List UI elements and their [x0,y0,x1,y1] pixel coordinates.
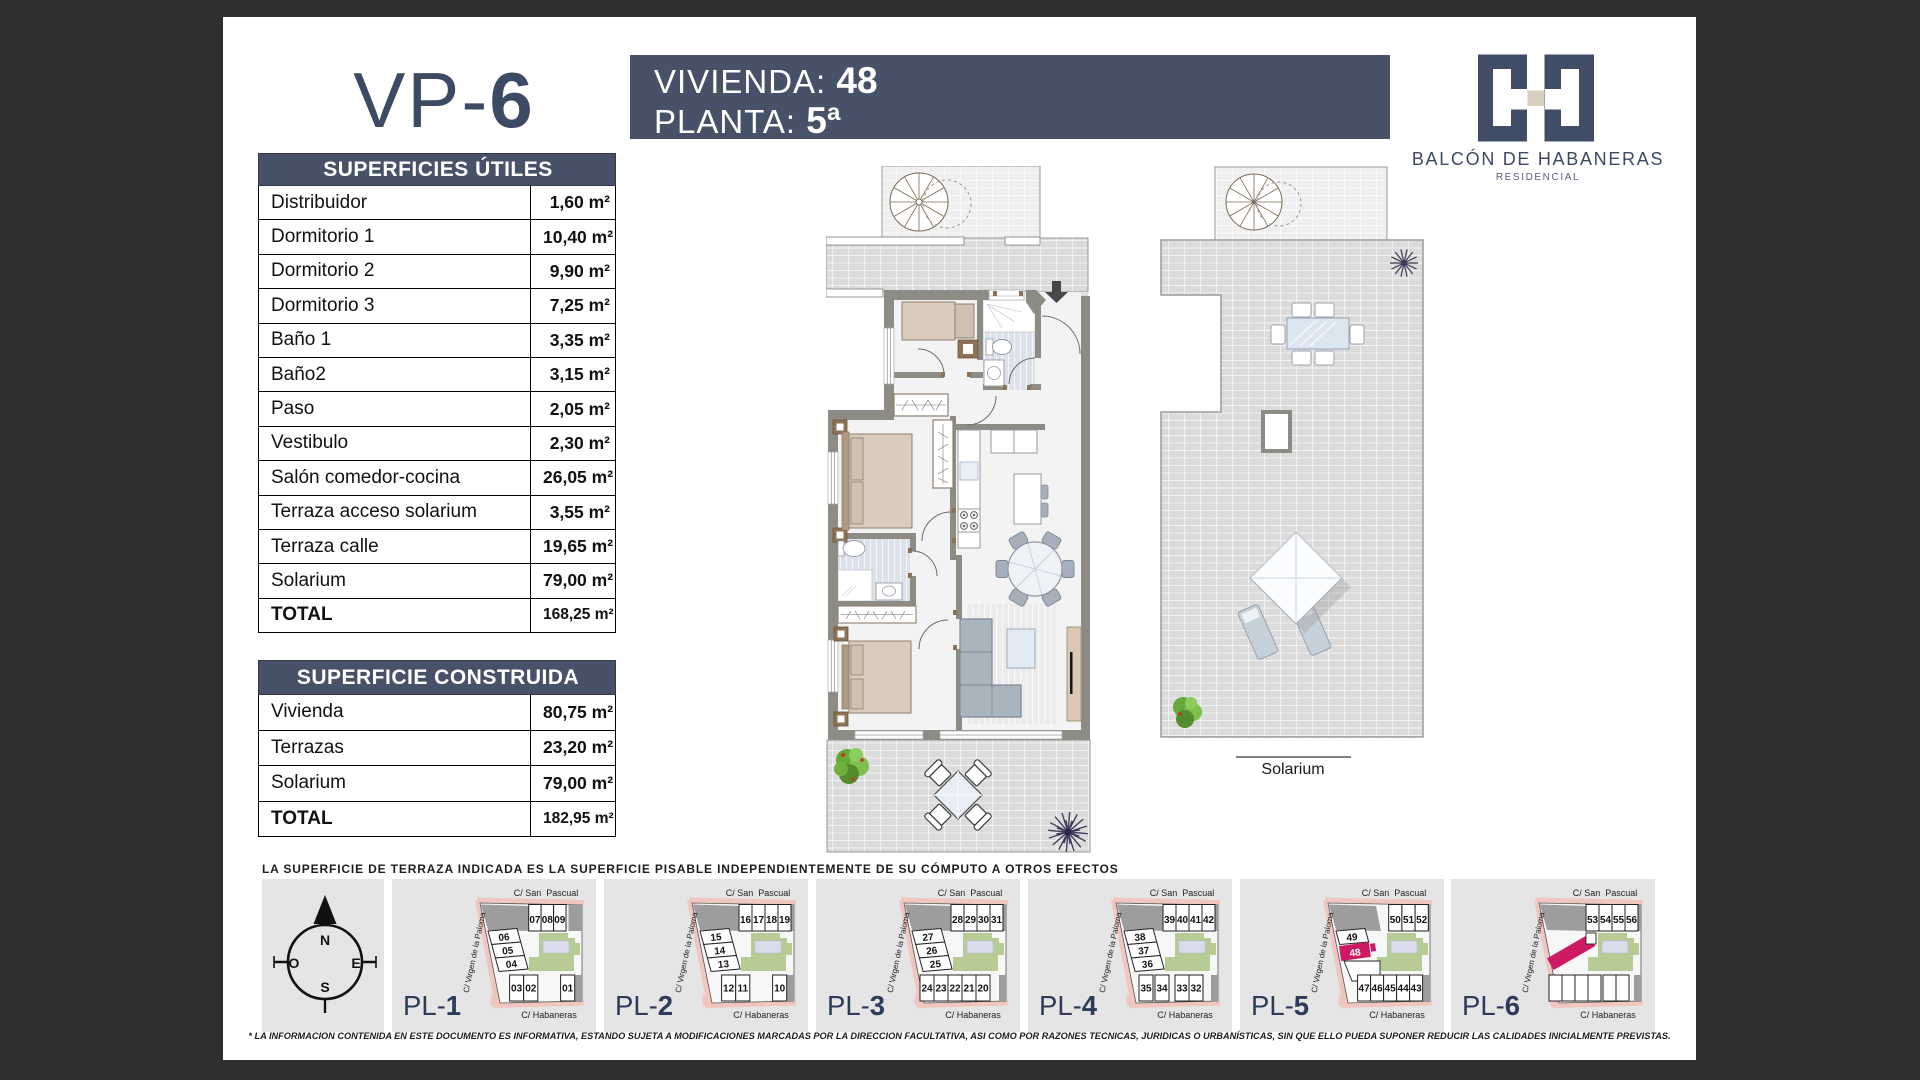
svg-text:C/ Virgen de la Paloma: C/ Virgen de la Paloma [1098,911,1124,994]
svg-text:35: 35 [1140,984,1152,995]
svg-text:27: 27 [922,932,934,944]
svg-text:11: 11 [738,984,749,995]
svg-text:07: 07 [529,915,541,926]
svg-text:53: 53 [1587,915,1599,926]
svg-text:PL-5: PL-5 [1251,990,1309,1021]
svg-text:21: 21 [963,984,975,995]
svg-text:32: 32 [1190,984,1202,995]
svg-text:51: 51 [1403,915,1415,926]
svg-text:O: O [289,955,300,971]
svg-text:E: E [351,955,360,971]
svg-text:C/ Habaneras: C/ Habaneras [1369,1010,1425,1020]
svg-text:08: 08 [542,915,554,926]
svg-text:49: 49 [1346,932,1358,944]
svg-text:01: 01 [562,984,574,995]
svg-text:33: 33 [1176,984,1188,995]
svg-text:05: 05 [502,945,514,957]
svg-text:54: 54 [1600,915,1612,926]
svg-text:44: 44 [1398,984,1410,995]
svg-text:38: 38 [1134,932,1146,944]
svg-text:20: 20 [977,984,989,995]
svg-text:Solarium: Solarium [1261,761,1324,778]
svg-text:C/ Habaneras: C/ Habaneras [1157,1010,1213,1020]
svg-text:36: 36 [1141,959,1153,971]
svg-text:PL-1: PL-1 [403,990,461,1021]
svg-text:02: 02 [525,984,537,995]
svg-text:30: 30 [978,915,990,926]
svg-text:55: 55 [1613,915,1625,926]
svg-text:BALCÓN DE HABANERAS: BALCÓN DE HABANERAS [1412,148,1664,169]
svg-text:40: 40 [1177,915,1189,926]
svg-text:18: 18 [766,915,778,926]
svg-text:03: 03 [511,984,523,995]
svg-text:15: 15 [710,932,722,944]
svg-text:22: 22 [949,984,961,995]
svg-text:29: 29 [965,915,977,926]
svg-text:37: 37 [1138,945,1150,957]
svg-text:52: 52 [1416,915,1428,926]
svg-text:13: 13 [717,959,729,971]
svg-text:28: 28 [952,915,964,926]
svg-text:C/ San Pascual: C/ San Pascual [1573,888,1638,898]
svg-text:PL-2: PL-2 [615,990,673,1021]
svg-text:S: S [320,979,329,995]
svg-text:39: 39 [1164,915,1176,926]
svg-text:46: 46 [1372,984,1384,995]
svg-text:23: 23 [935,984,947,995]
svg-text:RESIDENCIAL: RESIDENCIAL [1496,172,1580,183]
svg-text:C/ Habaneras: C/ Habaneras [1580,1010,1636,1020]
svg-text:34: 34 [1156,984,1168,995]
svg-text:26: 26 [926,945,938,957]
svg-text:C/ Virgen de la Paloma: C/ Virgen de la Paloma [886,911,912,994]
svg-text:56: 56 [1626,915,1638,926]
svg-text:24: 24 [921,984,933,995]
svg-text:12: 12 [723,984,735,995]
svg-text:17: 17 [753,915,765,926]
svg-text:43: 43 [1411,984,1423,995]
svg-text:04: 04 [505,959,517,971]
svg-text:C/ Virgen de la Paloma: C/ Virgen de la Paloma [462,911,488,994]
svg-text:C/ San Pascual: C/ San Pascual [726,888,791,898]
svg-text:45: 45 [1385,984,1397,995]
svg-text:PL-3: PL-3 [827,990,885,1021]
svg-text:48: 48 [1349,947,1362,960]
svg-text:10: 10 [774,984,786,995]
svg-text:PL-4: PL-4 [1039,990,1098,1021]
svg-text:50: 50 [1390,915,1402,926]
svg-text:C/ Habaneras: C/ Habaneras [733,1010,789,1020]
svg-text:47: 47 [1359,984,1371,995]
svg-text:N: N [320,932,330,948]
svg-text:C/ Habaneras: C/ Habaneras [945,1010,1001,1020]
svg-text:09: 09 [554,915,566,926]
svg-text:C/ San Pascual: C/ San Pascual [1150,888,1215,898]
svg-text:41: 41 [1190,915,1202,926]
svg-text:42: 42 [1203,915,1215,926]
svg-text:31: 31 [991,915,1003,926]
svg-text:25: 25 [929,959,941,971]
svg-text:PL-6: PL-6 [1462,990,1520,1021]
svg-text:C/ Virgen de la Paloma: C/ Virgen de la Paloma [674,911,700,994]
svg-text:14: 14 [714,945,726,957]
svg-text:16: 16 [740,915,752,926]
svg-text:C/ San Pascual: C/ San Pascual [1362,888,1427,898]
svg-text:19: 19 [779,915,791,926]
svg-text:C/ Habaneras: C/ Habaneras [521,1010,577,1020]
svg-text:C/ Virgen de la Paloma: C/ Virgen de la Paloma [1521,911,1547,994]
svg-text:C/ San Pascual: C/ San Pascual [938,888,1003,898]
svg-text:06: 06 [498,932,510,944]
svg-text:C/ San Pascual: C/ San Pascual [514,888,579,898]
svg-text:C/ Virgen de la Paloma: C/ Virgen de la Paloma [1310,911,1336,994]
